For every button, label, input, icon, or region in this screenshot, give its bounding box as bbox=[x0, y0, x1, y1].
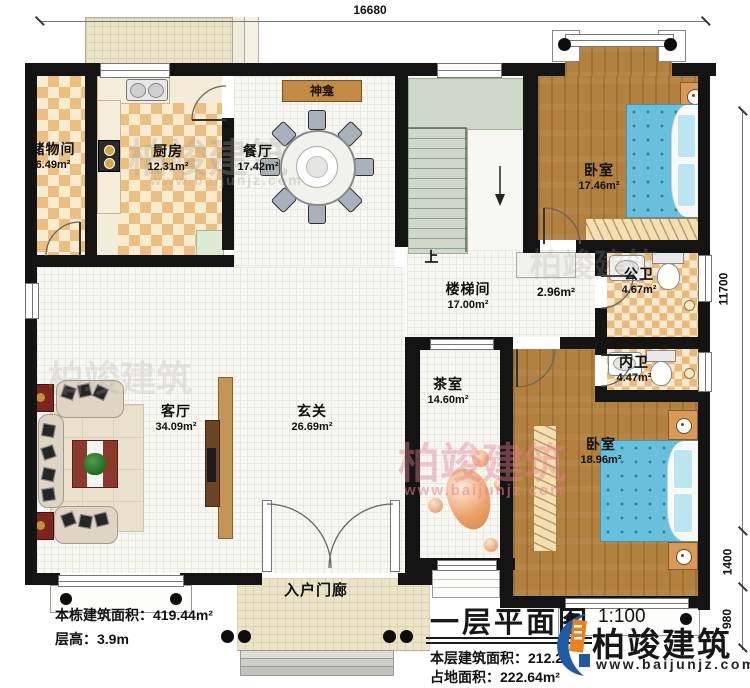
column-icon bbox=[664, 38, 677, 51]
wall bbox=[523, 63, 538, 253]
side-window bbox=[25, 283, 39, 319]
sofa-pillow bbox=[78, 514, 93, 529]
sofa-pillow bbox=[41, 423, 56, 438]
sofa-pillow bbox=[77, 383, 92, 398]
tv-feature-wall bbox=[218, 377, 233, 539]
bay-window bbox=[565, 34, 674, 47]
brand-logo-icon bbox=[548, 608, 596, 680]
bath-public-window bbox=[698, 255, 712, 302]
shrine-cabinet: 神龛 bbox=[282, 80, 362, 102]
wall bbox=[523, 240, 540, 253]
floor-drain-icon bbox=[684, 300, 695, 311]
stair-treads bbox=[408, 128, 468, 254]
toilet-icon bbox=[650, 361, 672, 386]
wall bbox=[560, 337, 607, 349]
column-icon bbox=[170, 593, 182, 605]
dimension-top: 16680 bbox=[300, 3, 440, 17]
dimension-line-top bbox=[40, 21, 706, 22]
porch-step bbox=[240, 666, 394, 676]
column-icon bbox=[558, 38, 571, 51]
stair-window bbox=[437, 63, 502, 78]
floor-area-note: 本层建筑面积：212.2 bbox=[430, 648, 563, 668]
room-label-bedroom-top: 卧室17.46m² bbox=[579, 162, 620, 192]
room-label-bath-private: 内卫4.47m² bbox=[617, 354, 652, 384]
footprint-area-note: 占地面积：222.64m² bbox=[430, 667, 560, 687]
tearoom-window bbox=[437, 560, 497, 571]
wardrobe bbox=[533, 425, 557, 552]
tea-stone bbox=[484, 538, 498, 552]
room-label-tearoom: 茶室14.60m² bbox=[428, 376, 469, 406]
wall bbox=[222, 118, 234, 250]
bed bbox=[626, 104, 700, 218]
room-label-corridor: 2.96m² bbox=[537, 286, 575, 299]
wall bbox=[85, 255, 234, 267]
dimension-right-mid: 1400 bbox=[720, 549, 734, 576]
wall bbox=[595, 247, 607, 276]
wall bbox=[420, 558, 432, 585]
dimension-line-right bbox=[742, 110, 743, 650]
room-label-bedroom-bottom: 卧室18.96m² bbox=[581, 436, 622, 466]
lamp-icon bbox=[676, 549, 692, 565]
wall bbox=[595, 390, 710, 402]
room-label-stairwell: 楼梯间17.00m² bbox=[446, 281, 491, 311]
porch-column-icon bbox=[383, 630, 396, 643]
hall-cabinet bbox=[516, 252, 576, 278]
porch-column-icon bbox=[400, 630, 413, 643]
wall bbox=[500, 337, 513, 608]
pillow bbox=[677, 114, 696, 158]
bay-floor bbox=[565, 46, 672, 78]
floor-height-note: 层高：3.9m bbox=[55, 629, 129, 649]
dimension-right-total: 11700 bbox=[716, 273, 730, 306]
wall bbox=[595, 337, 710, 349]
fridge bbox=[196, 230, 224, 257]
nightstand bbox=[668, 542, 698, 570]
bath-private-window bbox=[698, 352, 712, 392]
plant-icon bbox=[84, 453, 106, 475]
wall bbox=[25, 573, 60, 585]
dimension-tick bbox=[738, 643, 748, 653]
bedroom-bottom-entry-floor bbox=[513, 349, 595, 402]
total-area-note: 本栋建筑面积：419.44m² bbox=[55, 605, 213, 625]
nightstand bbox=[668, 410, 698, 440]
dimension-tick bbox=[738, 526, 748, 536]
terrace-step bbox=[244, 17, 258, 63]
lamp-icon bbox=[676, 418, 692, 434]
pillow bbox=[673, 449, 693, 489]
pillow bbox=[677, 163, 696, 207]
tv-icon bbox=[207, 448, 216, 482]
tea-stone bbox=[428, 498, 443, 513]
floor-plan-canvas: 16680 11700 1400 980 bbox=[0, 0, 750, 688]
kitchen-sink bbox=[126, 79, 168, 101]
room-label-dining: 餐厅17.42m² bbox=[238, 143, 279, 173]
floor-drain-icon bbox=[684, 368, 695, 379]
room-label-kitchen: 厨房12.31m² bbox=[148, 143, 189, 173]
coffee-table bbox=[72, 440, 118, 488]
entry-door-leaf bbox=[262, 500, 272, 572]
room-label-living: 客厅34.09m² bbox=[156, 403, 197, 433]
dining-table-set bbox=[268, 118, 364, 214]
tea-stone bbox=[472, 450, 489, 467]
porch-column-icon bbox=[238, 630, 251, 643]
wall bbox=[395, 63, 408, 247]
stove-icon bbox=[98, 140, 120, 172]
wardrobe bbox=[585, 218, 700, 242]
stair-up-label: 上 bbox=[425, 250, 440, 266]
room-label-storage: 储物间6.49m² bbox=[31, 141, 76, 171]
pillow bbox=[673, 493, 693, 533]
room-label-porch: 入户门廊 bbox=[284, 582, 348, 600]
wall bbox=[180, 573, 262, 585]
sofa-pillow bbox=[41, 487, 56, 502]
dimension-tick bbox=[738, 582, 748, 592]
column-icon bbox=[60, 593, 72, 605]
porch-column-icon bbox=[221, 630, 234, 643]
entry-door-leaf bbox=[390, 500, 400, 572]
room-label-foyer: 玄关26.69m² bbox=[292, 403, 333, 433]
tearoom-bay-steps bbox=[432, 570, 500, 598]
room-label-bath-public: 公卫4.67m² bbox=[622, 266, 657, 296]
sofa-pillow bbox=[41, 467, 56, 482]
living-bay-window bbox=[58, 575, 184, 587]
toilet-icon bbox=[657, 263, 680, 290]
tearoom-sliding-door bbox=[430, 339, 494, 350]
dimension-tick bbox=[738, 106, 748, 116]
brand-url: www.baijunjz.com bbox=[596, 656, 750, 672]
kitchen-window bbox=[100, 63, 170, 78]
wall bbox=[85, 63, 97, 267]
stair-landing bbox=[408, 78, 524, 130]
wall bbox=[405, 337, 420, 573]
